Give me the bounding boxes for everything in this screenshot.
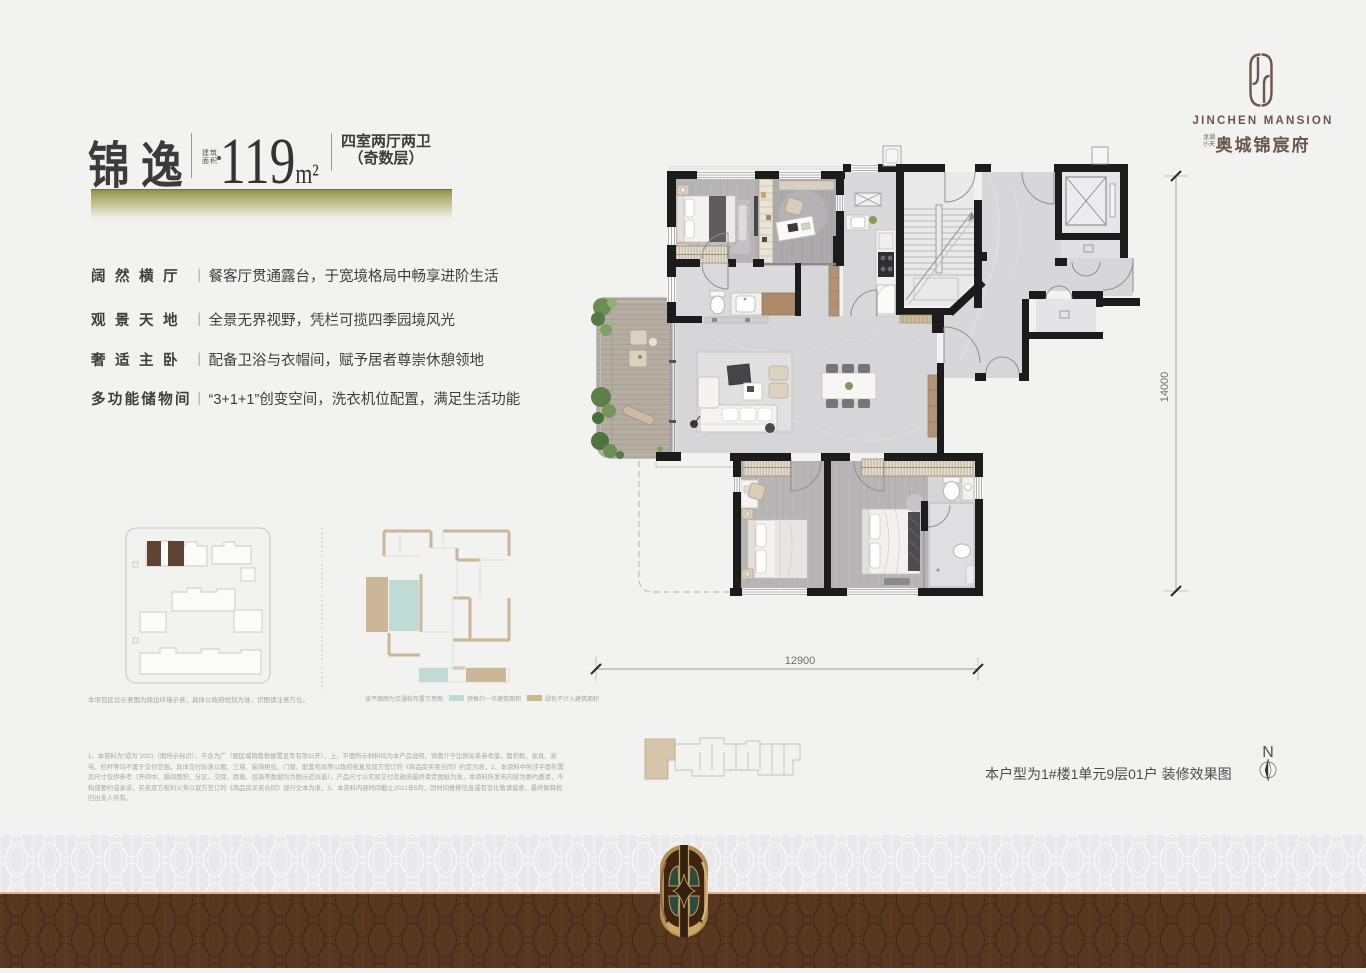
svg-text:14000: 14000 [1159, 372, 1171, 403]
svg-text:12900: 12900 [785, 655, 816, 667]
svg-text:N: N [1262, 744, 1274, 761]
